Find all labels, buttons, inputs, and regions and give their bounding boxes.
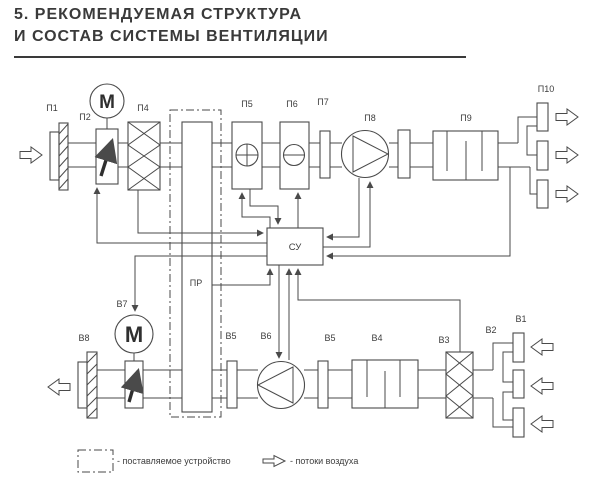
exhaust-silencer-v4	[352, 360, 418, 408]
label-v1: В1	[515, 314, 526, 324]
ventilation-diagram: П1 M П2 П4 ПР П5	[0, 64, 600, 489]
exhaust-flex-connector-v5-left	[227, 361, 237, 408]
page-title-line1: 5. РЕКОМЕНДУЕМАЯ СТРУКТУРА	[14, 6, 302, 23]
wire-su-to-p5	[242, 193, 270, 228]
label-v5-right: В5	[324, 333, 335, 343]
page-title: 5. РЕКОМЕНДУЕМАЯ СТРУКТУРА И СОСТАВ СИСТ…	[14, 4, 484, 48]
airflow-arrow-icon	[556, 186, 578, 202]
legend-supplied-device-label: - поставляемое устройство	[117, 456, 231, 466]
label-v7: В7	[116, 299, 127, 309]
air-handler-pr	[170, 110, 221, 417]
exhaust-filter-v3	[446, 352, 473, 418]
supply-intake-airflow-arrow-icon	[20, 147, 42, 163]
exhaust-inlet-airflow-arrows	[531, 339, 553, 432]
legend-airflow-arrow-icon	[263, 456, 285, 467]
label-p7: П7	[317, 97, 328, 107]
legend-supplied-device-box	[78, 450, 113, 472]
wire-p4-to-su	[138, 190, 263, 233]
exhaust-grilles-v1	[513, 333, 524, 437]
legend: - поставляемое устройство - потоки возду…	[78, 450, 358, 472]
supply-outlet-airflow-arrows	[556, 109, 578, 202]
label-su: СУ	[289, 242, 303, 253]
exhaust-damper-v7	[125, 361, 143, 408]
label-v2: В2	[485, 325, 496, 335]
control-wiring	[97, 167, 510, 360]
wire-p5-to-su	[250, 189, 278, 224]
motor-letter: M	[99, 92, 115, 113]
label-p1: П1	[46, 103, 57, 113]
label-p2: П2	[79, 112, 90, 122]
motor-letter: M	[125, 322, 143, 347]
label-p5: П5	[241, 99, 252, 109]
exhaust-fan-v6	[258, 362, 305, 409]
supply-flex-connector-p7	[320, 131, 330, 178]
supply-heater-p5	[232, 122, 262, 189]
label-v5-left: В5	[225, 331, 236, 341]
supply-damper-p2	[96, 129, 118, 184]
label-p10: П10	[538, 84, 554, 94]
supply-grille-p1	[50, 123, 68, 190]
label-v3: В3	[438, 335, 449, 345]
label-v6: В6	[260, 331, 271, 341]
page: 5. РЕКОМЕНДУЕМАЯ СТРУКТУРА И СОСТАВ СИСТ…	[0, 0, 600, 489]
supply-damper-motor-p2: M	[90, 84, 124, 129]
exhaust-grille-v8	[78, 352, 97, 418]
label-pr: ПР	[190, 278, 202, 288]
label-v4: В4	[371, 333, 382, 343]
supply-diffusers-p10	[537, 103, 548, 208]
airflow-arrow-icon	[531, 339, 553, 355]
supply-filter-p4	[128, 122, 160, 190]
label-p4: П4	[137, 103, 148, 113]
airflow-arrow-icon	[556, 147, 578, 163]
supply-fan-p8	[342, 131, 389, 178]
label-v8: В8	[78, 333, 89, 343]
exhaust-flex-connector-v5-right	[318, 361, 328, 408]
page-title-line2: И СОСТАВ СИСТЕМЫ ВЕНТИЛЯЦИИ	[14, 28, 329, 45]
label-p8: П8	[364, 113, 375, 123]
title-rule	[14, 56, 466, 58]
airflow-arrow-icon	[556, 109, 578, 125]
supply-silencer-p9	[433, 131, 498, 180]
airflow-arrow-icon	[531, 378, 553, 394]
exhaust-duct-lines	[97, 370, 493, 398]
label-p6: П6	[286, 99, 297, 109]
wire-p8-to-su	[327, 178, 359, 237]
exhaust-damper-motor-v7: M	[115, 315, 153, 361]
exhaust-outlet-airflow-arrow-icon	[48, 379, 70, 395]
supply-cooler-p6	[280, 122, 309, 189]
supply-branch-network	[518, 117, 537, 194]
airflow-arrow-icon	[531, 416, 553, 432]
supply-flex-connector	[398, 130, 410, 178]
label-p9: П9	[460, 113, 471, 123]
exhaust-branch-network-v2	[493, 343, 513, 427]
legend-airflow-label: - потоки воздуха	[290, 456, 358, 466]
